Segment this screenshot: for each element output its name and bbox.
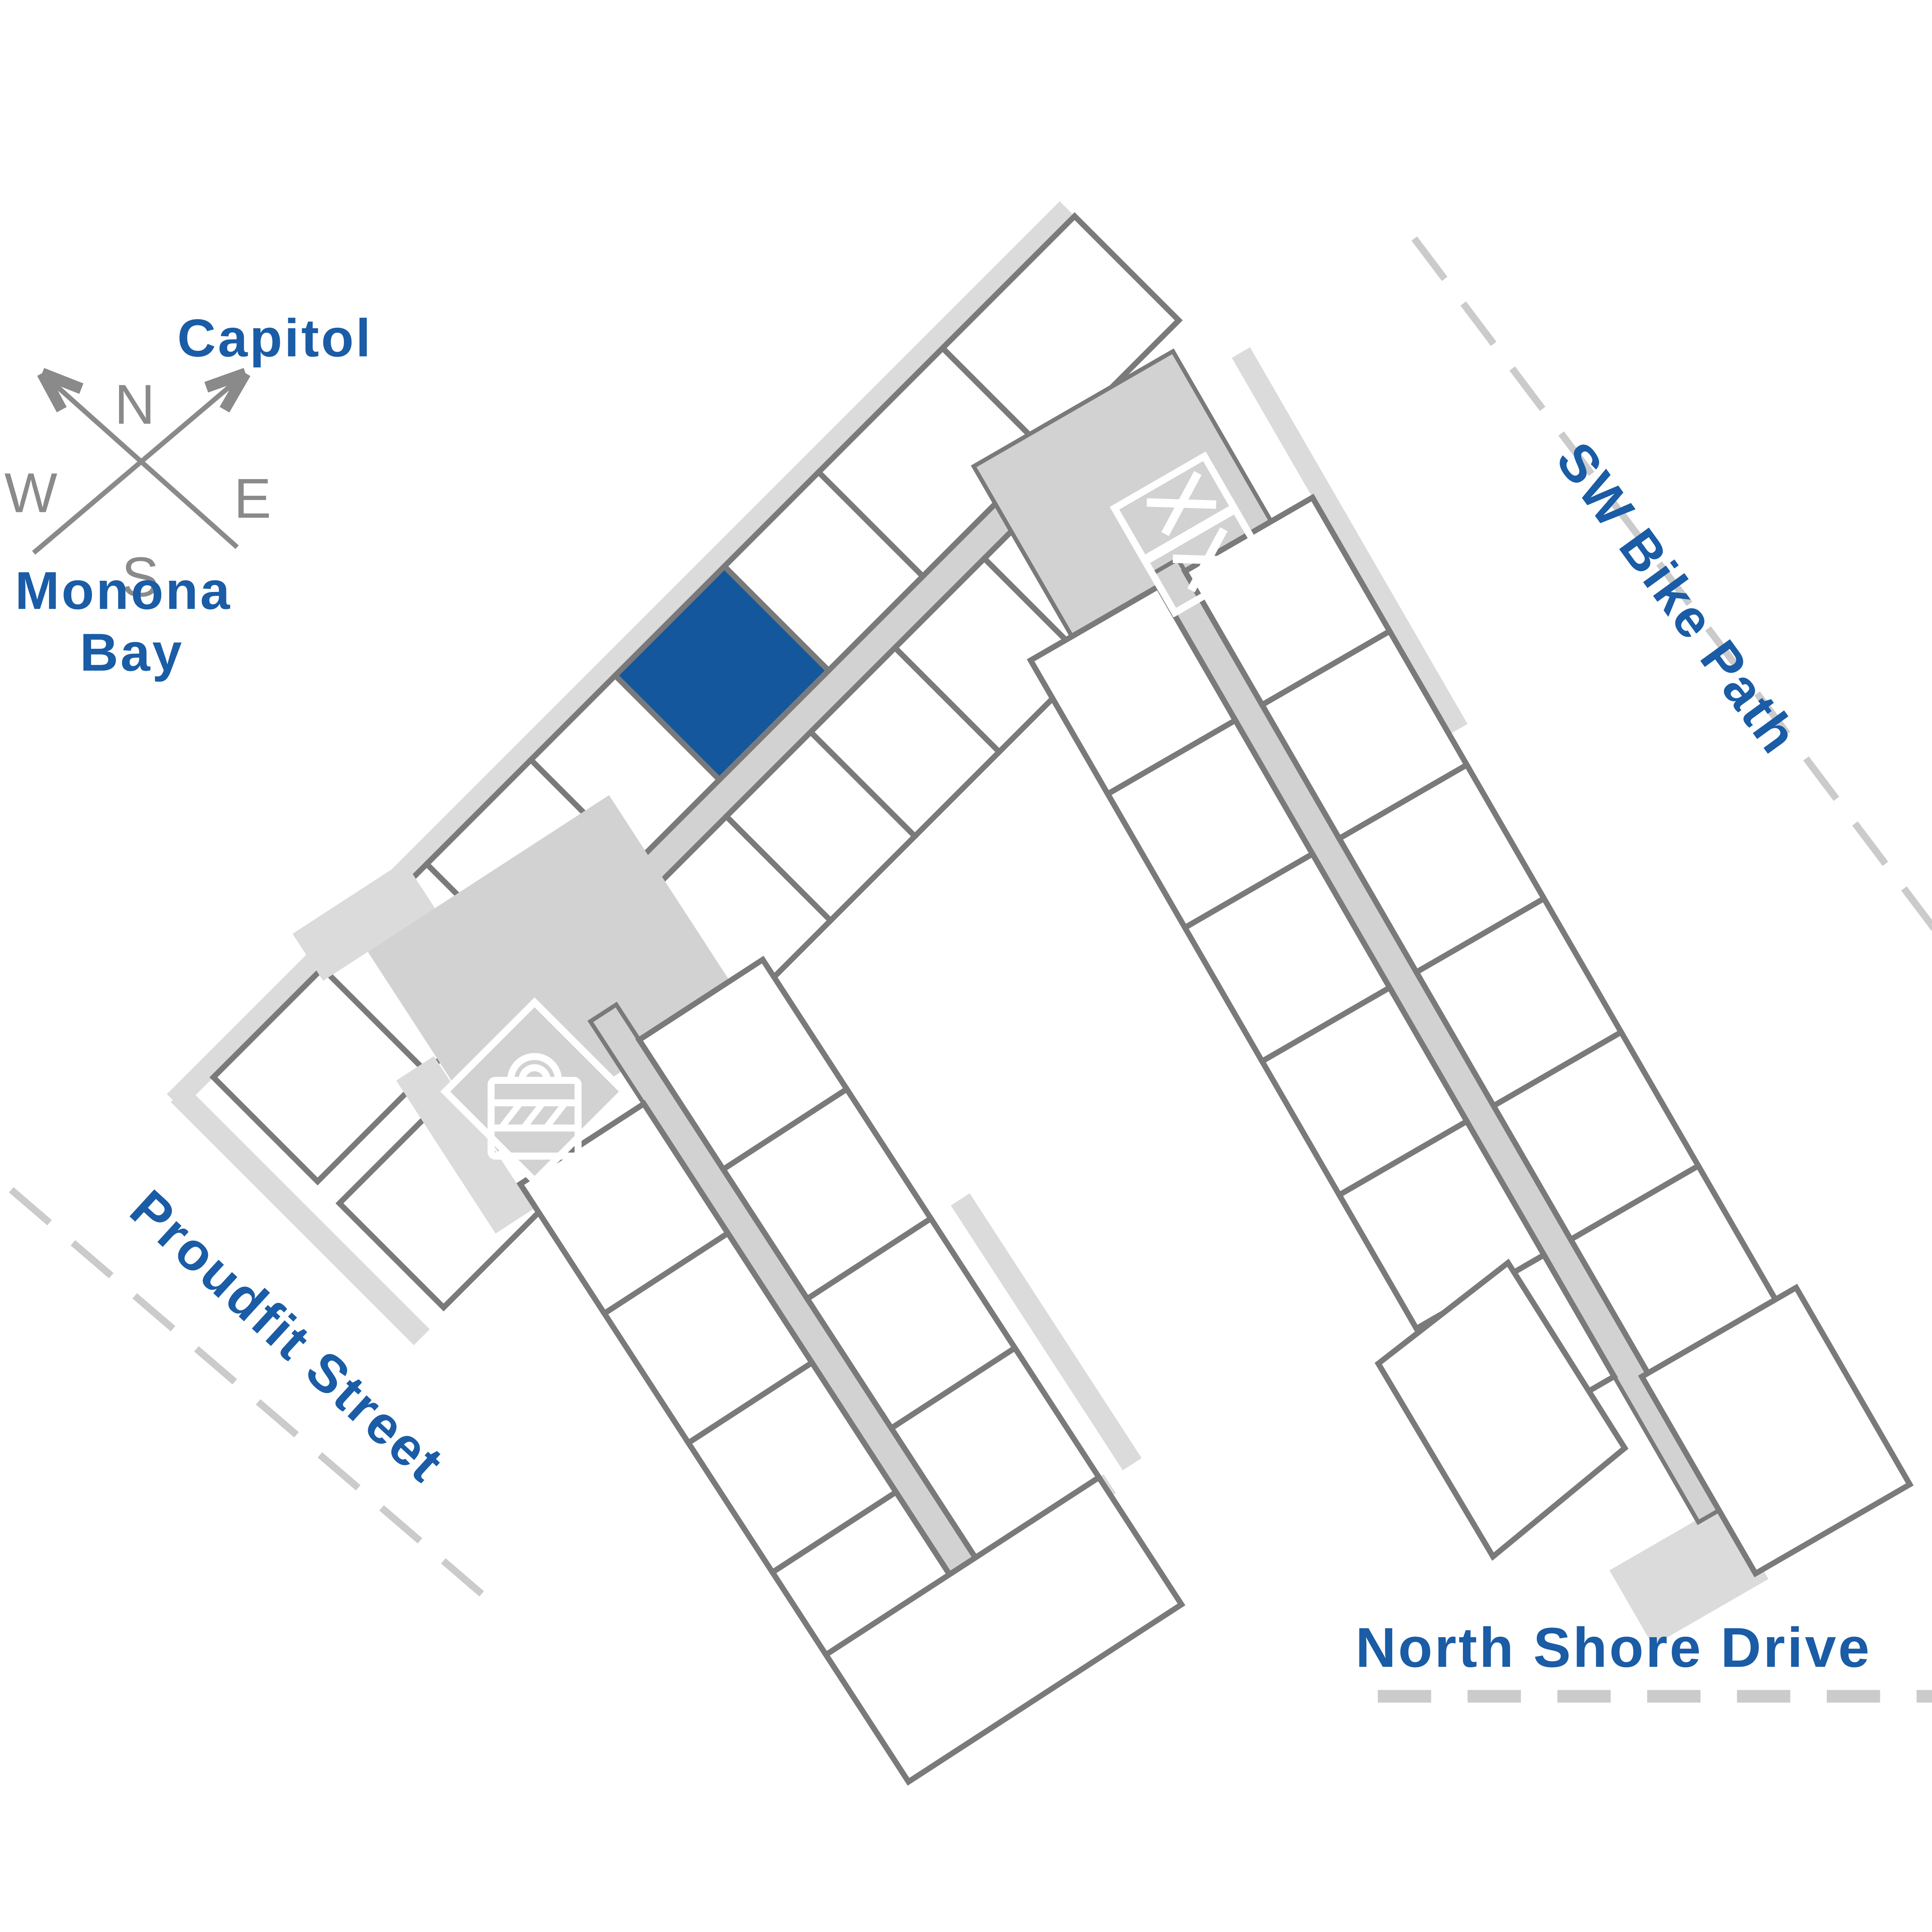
compass-north-label: N	[114, 373, 155, 436]
north-shore-drive-label: North Shore Drive	[1355, 1616, 1871, 1679]
monona-bay-label-line2: Bay	[80, 623, 184, 682]
sw-bike-path-label: SW Bike Path	[1545, 432, 1810, 765]
monona-bay-label-line1: Monona	[15, 561, 232, 621]
compass-west-label: W	[4, 461, 57, 524]
capitol-label: Capitol	[177, 308, 373, 368]
site-plan-svg: N W E S Capitol Monona Bay SW Bike Path …	[0, 0, 1932, 1932]
compass-east-label: E	[234, 467, 271, 530]
site-plan-page: N W E S Capitol Monona Bay SW Bike Path …	[0, 0, 1932, 1932]
